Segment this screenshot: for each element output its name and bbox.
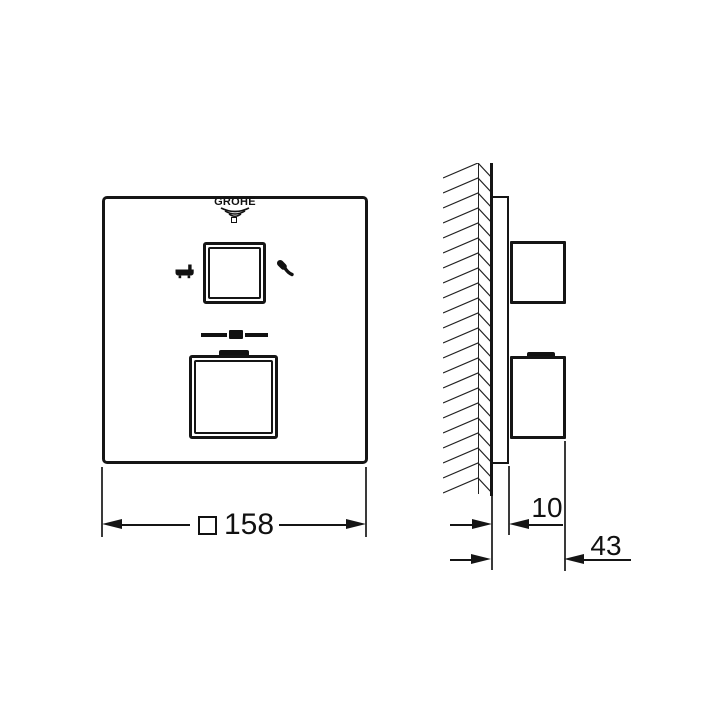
marker-block (229, 330, 243, 339)
diverter-knob (203, 242, 266, 304)
small-square-marker (231, 217, 237, 223)
technical-drawing: GROHE (0, 0, 720, 720)
faceplate-side (493, 196, 509, 464)
width-dimension-label: 158 (186, 510, 286, 540)
marker-dash-left (201, 333, 227, 337)
dimension-line-right (279, 524, 350, 526)
total-depth-label: 43 (578, 532, 634, 560)
width-dimension-value: 158 (224, 510, 274, 540)
knob-extension-line (564, 441, 566, 571)
square-symbol (198, 516, 217, 535)
dimension-line-left (116, 524, 190, 526)
depth10-arrow-left (472, 519, 492, 529)
bathtub-icon (175, 264, 196, 279)
thermostat-knob-face (194, 360, 273, 434)
diverter-knob-side (510, 241, 566, 304)
depth43-arrow-left (471, 554, 491, 564)
thermostat-knob (189, 355, 278, 439)
thermostat-knob-side (510, 356, 566, 439)
wall-extension-line (491, 496, 493, 570)
hatched-wall (443, 163, 492, 494)
hand-shower-icon (275, 258, 295, 278)
temperature-scale-marker (201, 330, 268, 339)
dimension-arrow-right (346, 519, 366, 529)
marker-dash-right (245, 333, 268, 337)
plate-depth-label: 10 (519, 494, 575, 522)
depth10-approach-line (450, 524, 474, 526)
diverter-knob-face (208, 247, 261, 299)
depth10-tail-line (527, 524, 563, 526)
